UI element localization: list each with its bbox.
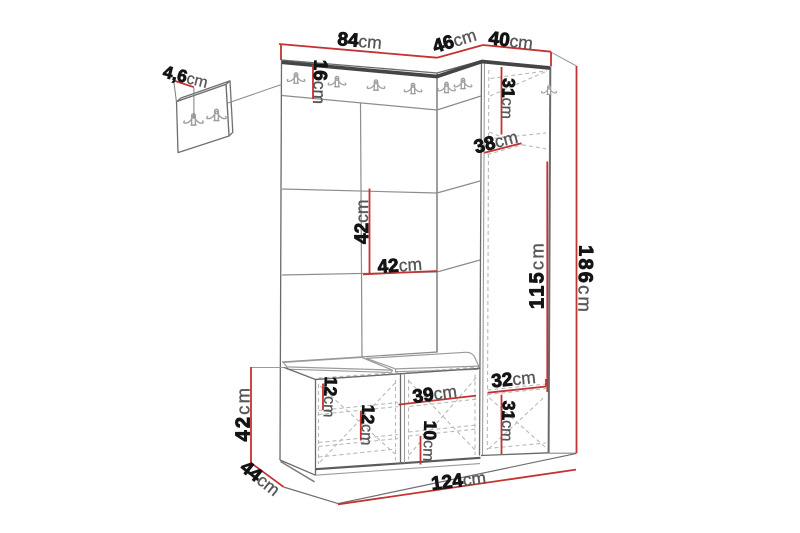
svg-text:186cm: 186cm <box>573 245 596 314</box>
svg-text:42cm: 42cm <box>352 200 373 244</box>
svg-text:16cm: 16cm <box>308 59 331 104</box>
svg-text:84cm: 84cm <box>337 29 383 54</box>
svg-text:115cm: 115cm <box>527 241 549 309</box>
svg-text:42cm: 42cm <box>233 386 255 442</box>
